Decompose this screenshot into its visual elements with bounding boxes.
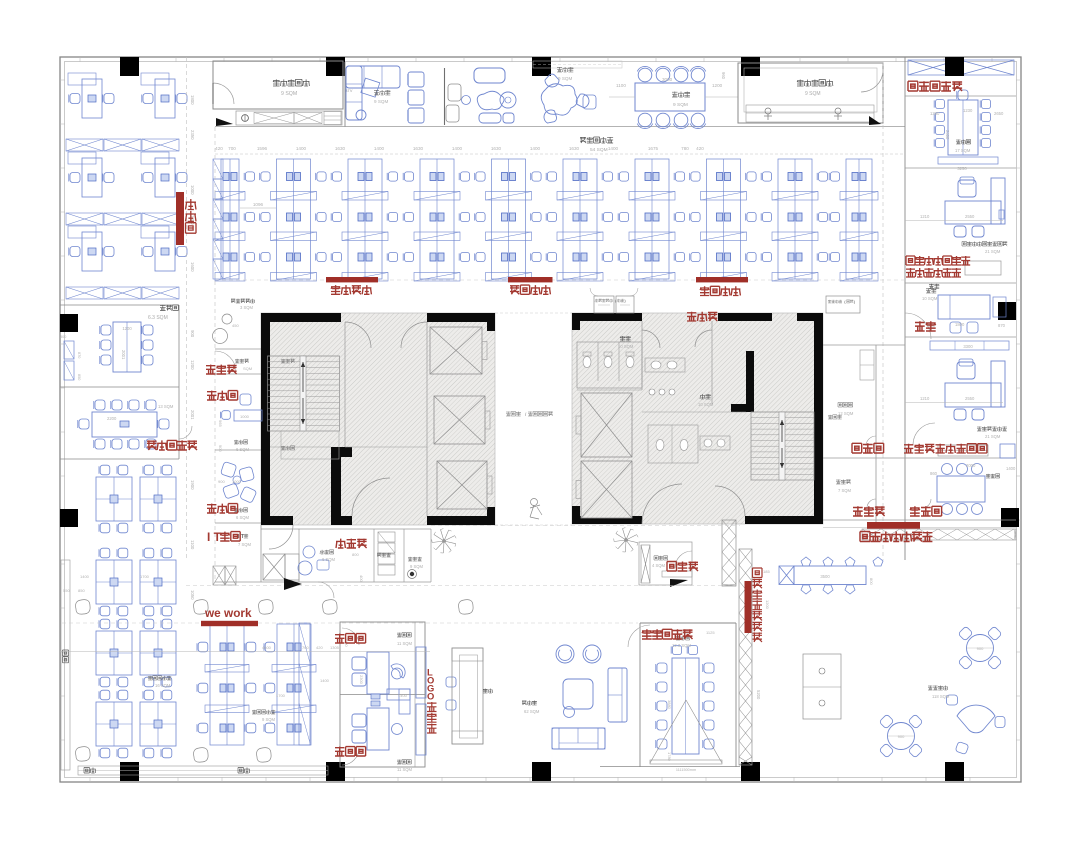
svg-text:21 SQM: 21 SQM [985,434,1001,439]
svg-text:62 SQM: 62 SQM [524,709,540,714]
svg-text:1200: 1200 [122,326,132,331]
svg-text:1400: 1400 [296,146,307,151]
svg-text:1675: 1675 [648,146,659,151]
svg-text:1200: 1200 [712,83,723,88]
svg-text:1000: 1000 [240,414,250,419]
svg-text:118 SQM: 118 SQM [932,694,950,699]
svg-text:450: 450 [232,323,239,328]
svg-text:5200: 5200 [756,690,761,700]
svg-text:3250: 3250 [957,166,967,171]
svg-text:11 SQM: 11 SQM [397,767,413,772]
svg-text:420: 420 [696,146,704,151]
svg-text:1125: 1125 [706,630,715,635]
svg-text:1630: 1630 [335,146,346,151]
svg-text:1780: 1780 [667,752,672,762]
svg-text:9 SQM: 9 SQM [374,99,388,104]
svg-text:9 SQM: 9 SQM [281,91,297,97]
svg-text:12 SQM: 12 SQM [838,411,854,416]
svg-text:9 SQM: 9 SQM [410,564,424,569]
svg-text:400: 400 [359,575,364,582]
svg-text:2550: 2550 [965,396,975,401]
svg-text:1200: 1200 [190,360,195,370]
svg-text:T: T [214,530,222,544]
svg-text:9 SQM: 9 SQM [558,76,572,81]
svg-text:1210: 1210 [920,396,930,401]
svg-text:900: 900 [977,646,984,651]
svg-text:850: 850 [77,374,81,380]
svg-text:1400: 1400 [1006,466,1016,471]
svg-text:SQM: SQM [243,366,252,371]
svg-text:1210: 1210 [920,214,930,219]
svg-text:6 SQM: 6 SQM [236,515,250,520]
svg-text:2000: 2000 [966,463,976,468]
svg-text:we work: we work [204,606,252,620]
svg-text:900: 900 [218,445,223,452]
svg-text:185: 185 [763,569,770,574]
svg-text:2650: 2650 [994,111,1004,116]
svg-text:965: 965 [218,420,223,427]
svg-text:10 SQM: 10 SQM [922,296,938,301]
svg-text:1400: 1400 [608,146,619,151]
svg-text:800: 800 [869,578,874,585]
svg-text:900: 900 [190,330,195,338]
svg-text:1630: 1630 [569,146,580,151]
svg-text:4 SQM: 4 SQM [652,563,666,568]
svg-text:3 SQM: 3 SQM [240,305,254,310]
svg-text:900: 900 [218,479,225,484]
svg-text:870: 870 [77,352,81,358]
svg-text:2200: 2200 [107,416,117,421]
svg-text:1000: 1000 [190,185,195,195]
svg-text:1050: 1050 [190,590,195,600]
svg-text:1000: 1000 [232,479,242,484]
svg-text:1200: 1200 [765,600,770,610]
svg-text:9 SQM: 9 SQM [262,717,276,722]
svg-text:800: 800 [352,552,359,557]
svg-text:9 SQM: 9 SQM [673,102,688,108]
svg-text:16 SQM: 16 SQM [155,683,171,688]
svg-text:960: 960 [721,72,726,80]
svg-text:1630: 1630 [413,146,424,151]
svg-text:3000: 3000 [662,77,673,82]
svg-text:6.3 SQM: 6.3 SQM [148,315,168,321]
svg-text:1100: 1100 [190,540,195,550]
svg-text:2001: 2001 [190,410,195,420]
svg-text:780: 780 [681,146,689,151]
svg-text:2400: 2400 [945,130,950,140]
svg-text:1800: 1800 [955,322,965,327]
svg-text:800: 800 [60,335,66,339]
svg-text:7 SQM: 7 SQM [238,542,252,547]
svg-text:1400: 1400 [530,146,541,151]
svg-text:6 SQM: 6 SQM [322,557,336,562]
svg-text:1700: 1700 [276,693,286,698]
svg-text:900: 900 [898,734,905,739]
svg-text:1400: 1400 [374,146,385,151]
svg-text:1900: 1900 [190,480,195,490]
svg-text:1111500mm: 1111500mm [676,768,696,772]
svg-text:13 SQM: 13 SQM [158,404,174,409]
svg-text:54 SQM: 54 SQM [590,147,608,153]
svg-text:420: 420 [316,645,323,650]
svg-text:1305: 1305 [330,645,340,650]
svg-text:12.3 SQM: 12.3 SQM [672,643,691,648]
svg-text:1596: 1596 [257,146,268,151]
svg-text:1630: 1630 [491,146,502,151]
svg-text:550: 550 [63,588,70,593]
svg-text:1800: 1800 [190,95,195,105]
svg-text:O: O [427,691,434,702]
svg-text:3500: 3500 [820,574,830,579]
svg-text:17 SQM: 17 SQM [955,148,971,153]
svg-text:11 SQM: 11 SQM [397,641,413,646]
svg-text:1400: 1400 [452,146,463,151]
svg-text:1400: 1400 [80,574,90,579]
svg-text:860: 860 [930,471,938,476]
svg-text:3880: 3880 [667,700,672,710]
svg-text:6 SQM: 6 SQM [236,447,250,452]
svg-text:2550: 2550 [965,214,975,219]
svg-text:420: 420 [215,146,223,151]
svg-text:1230: 1230 [963,108,973,113]
svg-text:3300: 3300 [963,344,973,349]
svg-text:700: 700 [228,146,236,151]
svg-text:850: 850 [78,588,85,593]
svg-text:870: 870 [998,323,1006,328]
svg-text:1400: 1400 [398,693,408,698]
svg-text:2350: 2350 [190,130,195,140]
svg-text:1096: 1096 [253,202,264,207]
svg-text:4600: 4600 [262,645,272,650]
svg-text:7 SQM: 7 SQM [838,488,852,493]
svg-text:1380: 1380 [930,111,940,116]
svg-text:1700: 1700 [140,574,150,579]
svg-text:9 SQM: 9 SQM [805,91,821,97]
svg-text:1600: 1600 [190,262,195,272]
svg-text:10 SQM: 10 SQM [698,402,714,407]
svg-text:700: 700 [302,645,309,650]
svg-text:1100: 1100 [616,83,626,88]
svg-text:21 SQM: 21 SQM [985,249,1001,254]
svg-text:I: I [207,530,210,544]
svg-text:10 SQM: 10 SQM [618,344,634,349]
svg-text:2300: 2300 [359,675,364,685]
svg-text:2001: 2001 [121,350,126,360]
svg-text:1400: 1400 [320,678,330,683]
